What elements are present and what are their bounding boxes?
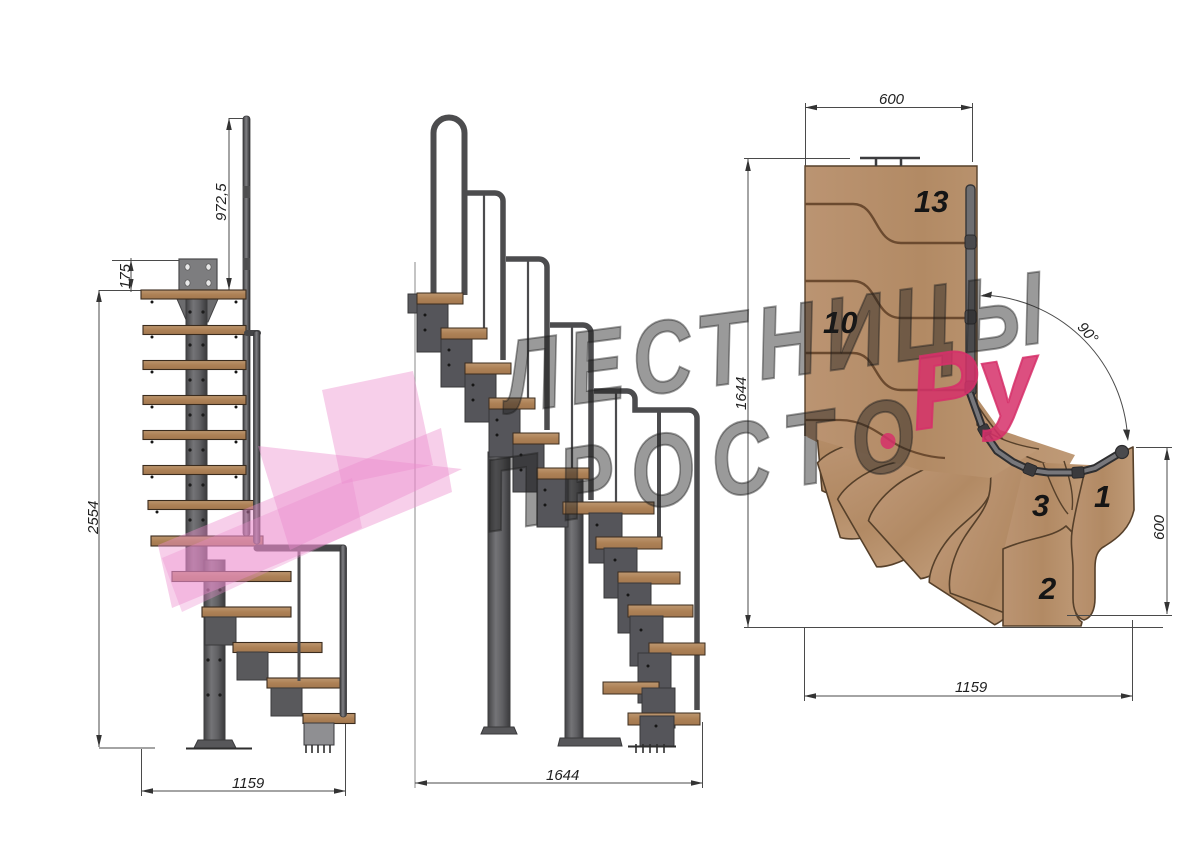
svg-text:175: 175 <box>117 263 134 289</box>
svg-text:600: 600 <box>1151 514 1168 540</box>
svg-text:1159: 1159 <box>955 679 988 696</box>
svg-text:1: 1 <box>1094 479 1111 514</box>
svg-text:1644: 1644 <box>546 767 579 784</box>
svg-text:972,5: 972,5 <box>213 183 230 221</box>
svg-text:2: 2 <box>1038 571 1056 606</box>
svg-text:90°: 90° <box>1074 319 1102 347</box>
svg-text:13: 13 <box>914 184 948 219</box>
svg-text:1159: 1159 <box>232 775 265 792</box>
svg-text:2554: 2554 <box>85 501 102 535</box>
svg-text:Ру: Ру <box>901 317 1050 452</box>
svg-text:3: 3 <box>1032 488 1049 523</box>
svg-text:600: 600 <box>879 91 905 108</box>
